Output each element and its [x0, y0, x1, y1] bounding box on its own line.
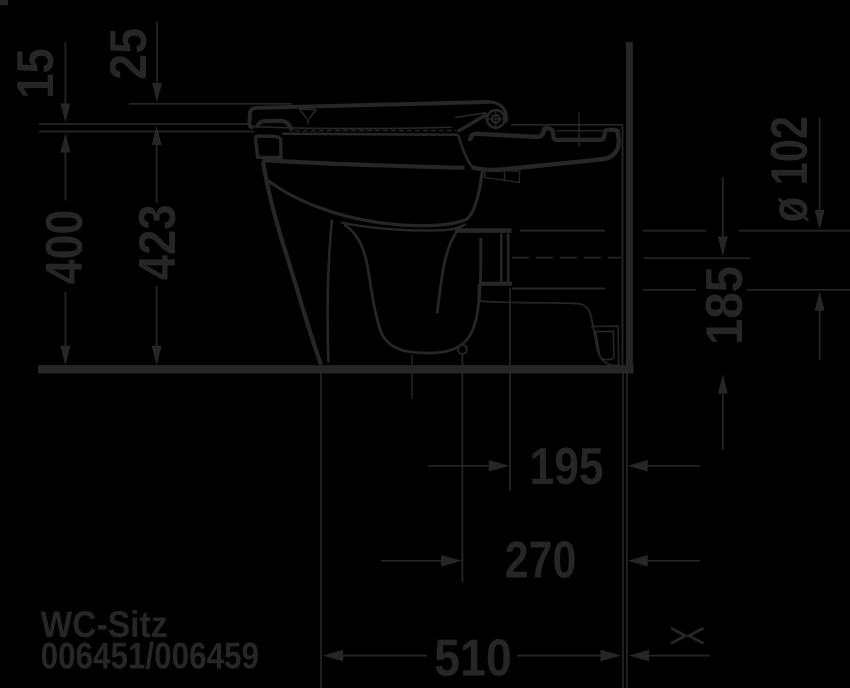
svg-text:006451/006459: 006451/006459: [41, 635, 259, 677]
svg-text:185: 185: [695, 266, 753, 345]
svg-text:15: 15: [6, 48, 64, 99]
svg-text:195: 195: [530, 437, 604, 495]
svg-text:510: 510: [434, 628, 512, 686]
svg-text:270: 270: [505, 531, 577, 589]
svg-text:423: 423: [128, 204, 186, 280]
svg-text:400: 400: [35, 210, 93, 285]
svg-text:25: 25: [99, 28, 157, 80]
svg-text:ø 102: ø 102: [760, 116, 818, 222]
